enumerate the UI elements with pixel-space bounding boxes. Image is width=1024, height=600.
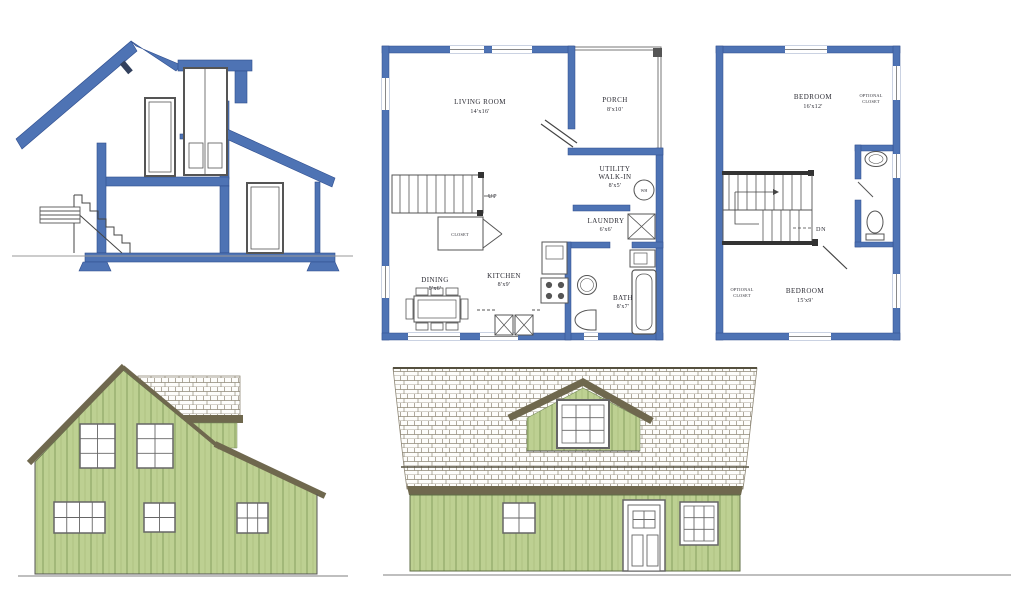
architectural-drawing-sheet: WH LIVING ROOM 14'x16' PORCH 8'x10' UTIL… <box>0 0 1024 600</box>
porch-post <box>653 48 662 57</box>
kitchen-label: KITCHEN <box>487 272 521 280</box>
laundry-label: LAUNDRY <box>588 217 625 225</box>
side-window-lower-left <box>54 502 105 533</box>
section-leanto-door-frame <box>247 183 283 253</box>
floor2-bathroom-fixtures <box>865 152 887 241</box>
section-entry-steps <box>40 207 80 223</box>
second-floor-plan: BEDROOM 16'x12' OPTIONAL CLOSET DN BEDRO… <box>713 42 913 347</box>
living-room-label: LIVING ROOM <box>454 98 506 106</box>
section-ground-slab <box>85 253 335 262</box>
section-right-roof <box>131 41 181 71</box>
stairs-up-label: UP <box>488 193 497 200</box>
bedroom-lower-size: 15'x9' <box>797 298 813 304</box>
stairs-down-label: DN <box>816 226 826 233</box>
section-upper-door-frame <box>145 98 175 176</box>
section-mid-wall-lower <box>220 186 229 253</box>
utility-label-line1: UTILITY <box>600 165 631 173</box>
first-floor-plan: WH LIVING ROOM 14'x16' PORCH 8'x10' UTIL… <box>380 38 680 348</box>
cross-section-drawing <box>10 35 355 295</box>
dining-table <box>406 288 468 330</box>
section-left-wall <box>97 143 106 253</box>
side-window-lower-middle <box>144 503 175 532</box>
bath-size: 8'x7' <box>617 304 630 310</box>
dining-size: 8'x6' <box>429 286 442 292</box>
bedroom-upper-label: BEDROOM <box>794 93 832 101</box>
bath-fixtures <box>575 270 656 334</box>
front-elevation-drawing <box>383 358 1023 588</box>
side-window-upper-left <box>80 424 115 468</box>
bedroom-lower-label: BEDROOM <box>786 287 824 295</box>
laundry-appliances <box>628 214 655 267</box>
floor2-labels: BEDROOM 16'x12' OPTIONAL CLOSET DN BEDRO… <box>730 93 882 304</box>
floor1-closet <box>438 217 502 250</box>
floor2-stairs <box>722 170 818 246</box>
dining-label: DINING <box>421 276 449 284</box>
optional-closet-upper-line1: OPTIONAL <box>859 93 882 98</box>
bath-toilet <box>575 310 596 330</box>
laundry-size: 6'x6' <box>600 227 613 233</box>
section-dormer-right-wall <box>235 71 247 103</box>
front-door <box>623 500 665 571</box>
floor1-stairs <box>392 172 494 216</box>
bathroom-door-swing <box>858 182 873 197</box>
front-window-left <box>503 503 535 533</box>
kitchen-size: 8'x9' <box>498 282 511 288</box>
porch-label: PORCH <box>602 96 628 104</box>
front-fascia <box>407 486 743 495</box>
section-footing-right <box>307 262 339 271</box>
water-heater: WH <box>634 180 654 200</box>
front-window-right <box>680 502 718 545</box>
section-blue-structure <box>16 41 339 271</box>
living-room-size: 14'x16' <box>470 109 489 115</box>
side-elevation-drawing <box>18 360 348 585</box>
bathroom-toilet <box>867 211 883 233</box>
water-heater-label: WH <box>641 188 648 193</box>
kitchen-fixtures <box>477 242 568 335</box>
section-leanto-roof <box>222 128 335 187</box>
section-left-roof <box>16 41 137 149</box>
front-roof-lower-band <box>404 467 746 489</box>
utility-size: 8'x5' <box>609 183 622 189</box>
floor2-windows <box>785 46 900 340</box>
section-dormer-window-frame <box>184 68 227 175</box>
bedroom2-door-swing <box>823 246 847 269</box>
optional-closet-upper-line2: CLOSET <box>862 99 880 104</box>
bathtub <box>632 270 656 334</box>
side-window-upper-right <box>137 424 173 468</box>
bedroom-upper-size: 16'x12' <box>803 104 822 110</box>
utility-label-line2: WALK-IN <box>598 173 631 181</box>
closet-label: CLOSET <box>451 232 469 237</box>
bath-label: BATH <box>613 294 633 302</box>
section-leanto-post <box>315 182 320 253</box>
porch-size: 8'x10' <box>607 107 623 113</box>
front-dormer-window <box>557 400 609 448</box>
section-footing-left <box>79 262 111 271</box>
optional-closet-lower-line2: CLOSET <box>733 293 751 298</box>
side-window-lower-right <box>237 503 268 533</box>
section-floor-slab <box>98 177 229 186</box>
optional-closet-lower-line1: OPTIONAL <box>730 287 753 292</box>
bathroom-sink <box>865 152 887 167</box>
